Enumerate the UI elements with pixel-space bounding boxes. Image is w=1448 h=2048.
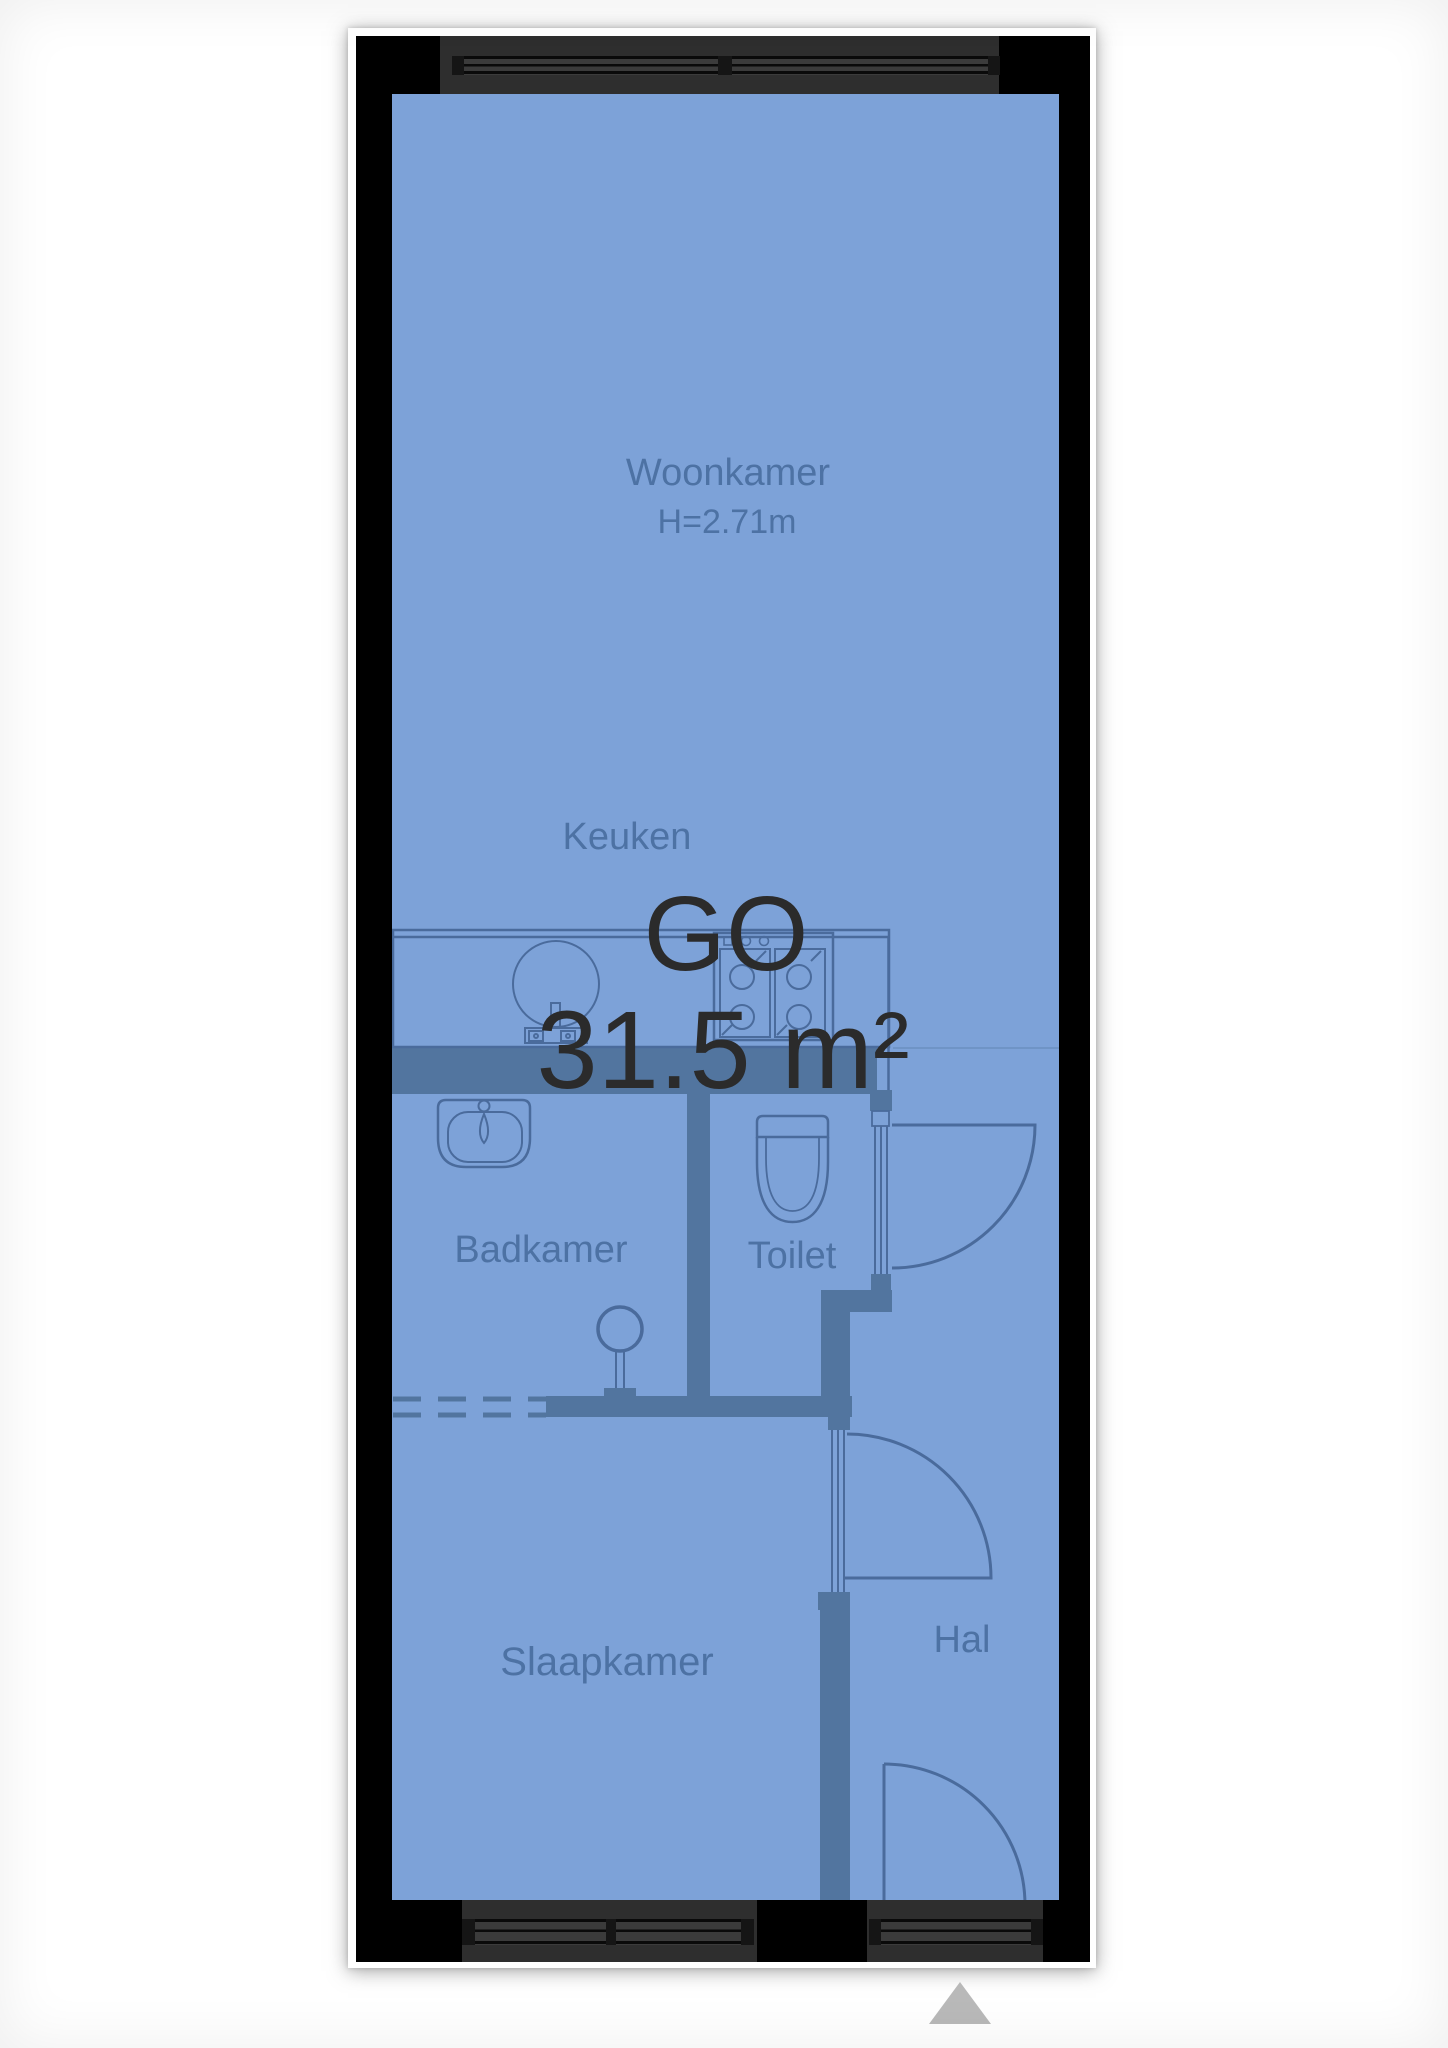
wall-toilet-step: [821, 1290, 892, 1312]
room-label-woonkamer: Woonkamer: [626, 454, 830, 492]
room-label-keuken: Keuken: [563, 818, 692, 856]
wall-slaapkamer-hal: [820, 1610, 850, 1900]
wall-corner-top-right: [999, 36, 1090, 94]
north-arrow-icon: [929, 1982, 991, 2024]
wall-right: [1059, 36, 1090, 1962]
wall-badkamer-slaapkamer: [546, 1396, 852, 1417]
wall-corner-top-left: [356, 36, 440, 94]
wall-badkamer-toilet: [687, 1094, 710, 1396]
room-label-toilet: Toilet: [748, 1237, 837, 1275]
floorplan-page: Woonkamer H=2.71m Keuken Badkamer Toilet…: [0, 0, 1448, 2048]
slaapkamer-door-frame-top: [828, 1417, 850, 1430]
gross-area-label: GO: [644, 881, 809, 987]
room-label-slaapkamer: Slaapkamer: [500, 1642, 713, 1682]
top-window-wall: [440, 36, 1000, 94]
room-label-hal: Hal: [933, 1621, 990, 1659]
bottom-window-wall: [356, 1900, 1090, 1962]
wall-left: [356, 36, 392, 1962]
toilet-door-frame-bottom: [871, 1274, 891, 1290]
room-label-badkamer: Badkamer: [454, 1231, 627, 1269]
slaapkamer-door-frame-bottom: [818, 1592, 850, 1610]
ceiling-height-note: H=2.71m: [658, 505, 797, 539]
wall-step-vertical: [821, 1312, 850, 1402]
gross-area-value: 31.5 m²: [537, 996, 910, 1106]
